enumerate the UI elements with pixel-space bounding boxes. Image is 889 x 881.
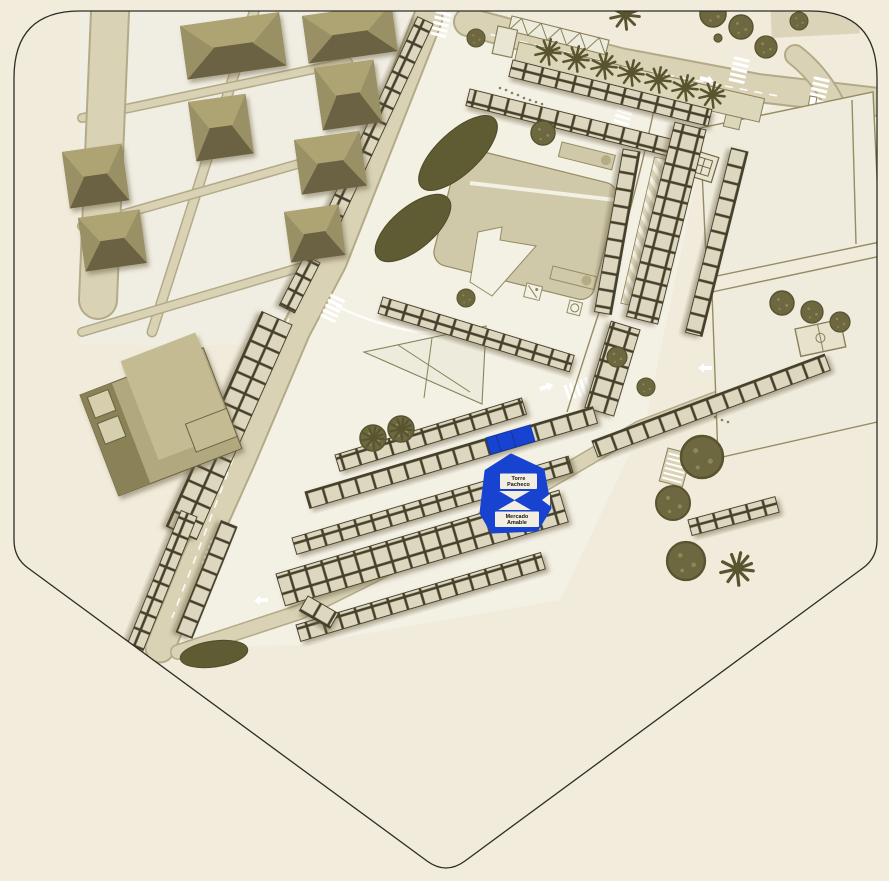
building [62, 144, 129, 209]
tree [531, 121, 555, 145]
tree [607, 347, 627, 367]
building [78, 209, 147, 271]
building [284, 204, 346, 262]
tree [656, 486, 690, 520]
tree [457, 289, 475, 307]
tree [467, 29, 485, 47]
building [188, 94, 254, 161]
tree [801, 301, 823, 323]
tree [681, 436, 723, 478]
tree [637, 378, 655, 396]
marker-market-name: MercadoAmable [506, 514, 529, 526]
map-viewport: TorrePacheco MercadoAmable [0, 0, 889, 881]
building [314, 60, 382, 131]
tree [729, 15, 753, 39]
tree [770, 291, 794, 315]
tree [667, 542, 705, 580]
tree [790, 12, 808, 30]
site-map: TorrePacheco MercadoAmable [0, 0, 889, 881]
shrub [714, 34, 722, 42]
tree [830, 312, 850, 332]
building [294, 131, 367, 195]
tree [755, 36, 777, 58]
